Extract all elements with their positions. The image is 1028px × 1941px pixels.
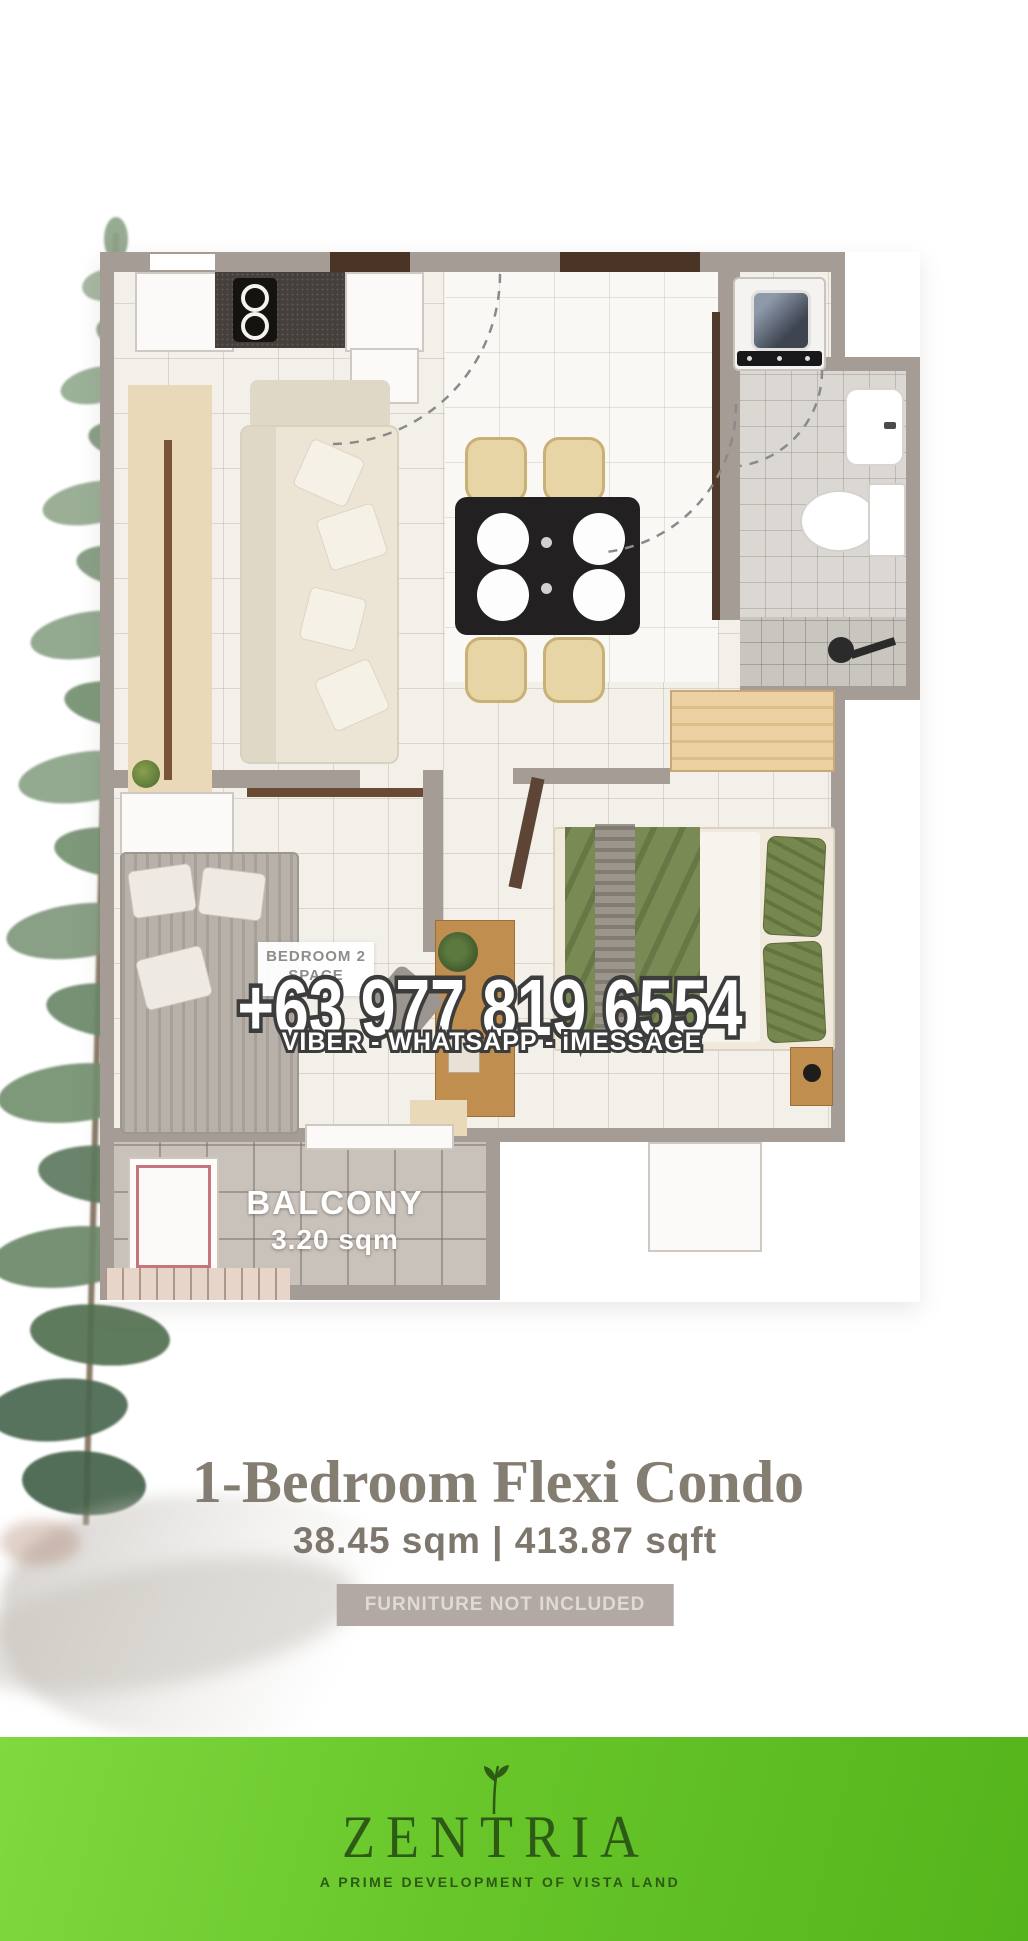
brand-tagline: A PRIME DEVELOPMENT OF VISTA LAND [320,1874,680,1890]
messaging-apps: VIBER - WHATSAPP - iMESSAGE [282,1028,703,1057]
messaging-apps-overlay: VIBER - WHATSAPP - iMESSAGE VIBER - WHAT… [282,1028,703,1057]
unit-area: 38.45 sqm | 413.87 sqft [293,1520,717,1562]
brand-logo: ZENTRIA [342,1802,650,1871]
door-swing-arcs [100,252,920,1302]
furniture-disclaimer-badge: FURNITURE NOT INCLUDED [337,1584,674,1626]
unit-title: 1-Bedroom Flexi Condo [192,1448,804,1517]
floor-plan: BEDROOM 2 SPACE BALCONY 3.20 sqm [100,252,920,1302]
